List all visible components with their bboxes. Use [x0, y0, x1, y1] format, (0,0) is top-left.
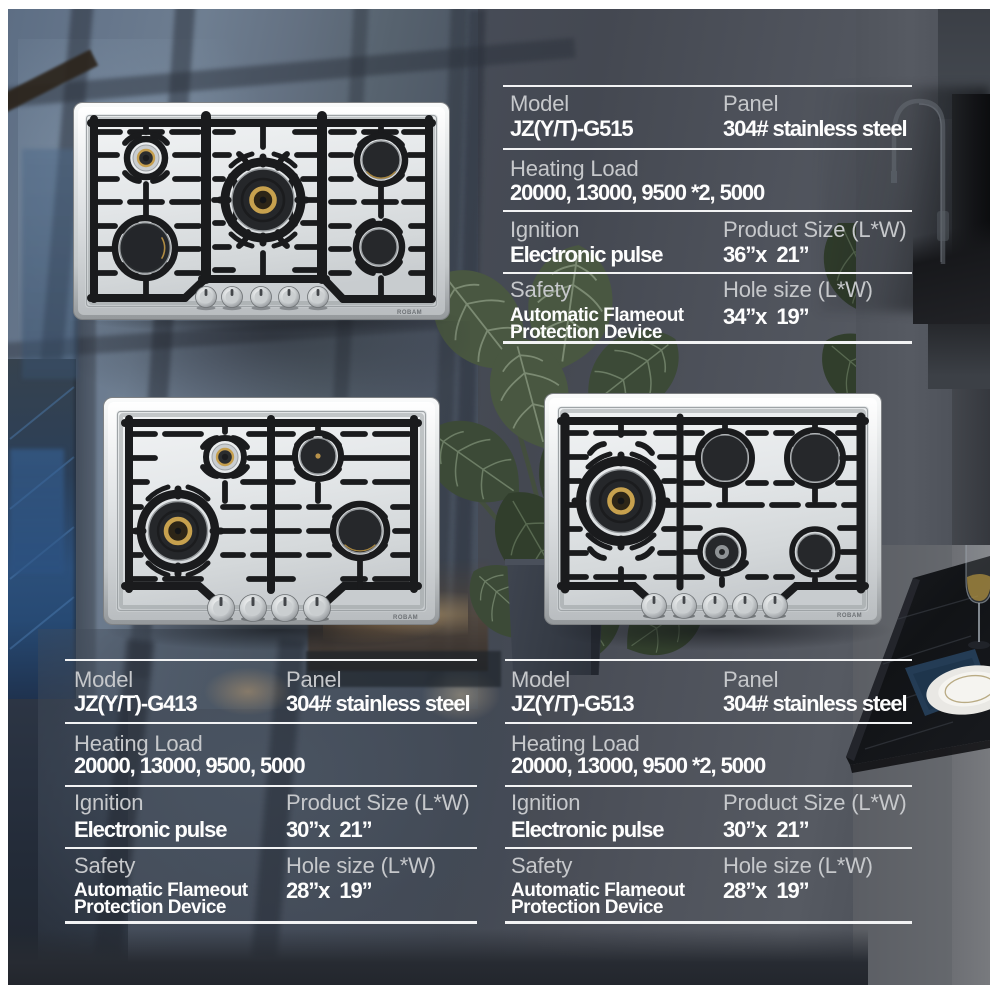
- svg-text:ROBAM: ROBAM: [837, 613, 862, 619]
- svg-text:ROBAM: ROBAM: [393, 615, 418, 621]
- svg-text:ROBAM: ROBAM: [397, 310, 422, 316]
